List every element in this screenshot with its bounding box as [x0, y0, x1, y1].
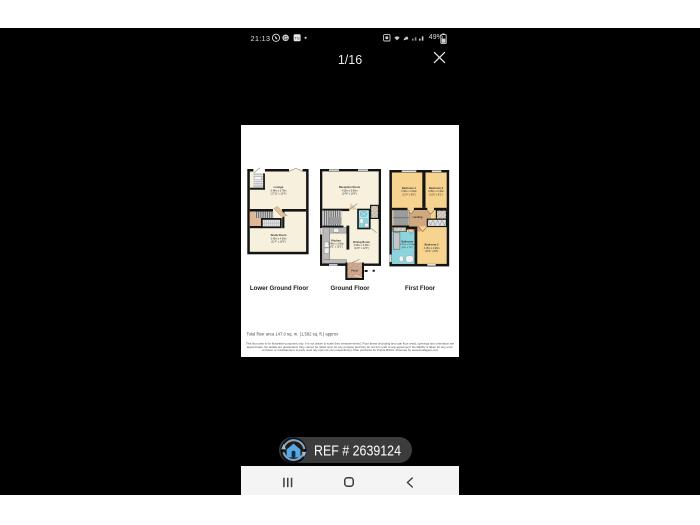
svg-text:(12'0" x 12'0"): (12'0" x 12'0") — [354, 247, 369, 250]
svg-text:(8'2" x 12'0"): (8'2" x 12'0") — [329, 246, 343, 249]
svg-text:Bathroom: Bathroom — [401, 240, 414, 243]
svg-text:Total floor area 147.0 sq. m.: Total floor area 147.0 sq. m. (1,582 sq.… — [247, 332, 340, 337]
svg-text:(10'0" x 8'1"): (10'0" x 8'1") — [429, 193, 443, 196]
svg-text:First Floor: First Floor — [405, 285, 436, 292]
svg-text:G: G — [283, 36, 287, 42]
svg-text:(17'11" x 12'4"): (17'11" x 12'4") — [271, 193, 287, 196]
svg-text:1.97m x 2.28m: 1.97m x 2.28m — [400, 244, 415, 246]
svg-text:(6'6" x 7'6"): (6'6" x 7'6") — [402, 247, 413, 249]
svg-text:TG: TG — [294, 36, 300, 41]
svg-text:(14'9" x 19'4"): (14'9" x 19'4") — [342, 193, 357, 196]
svg-text:Lower Ground Floor: Lower Ground Floor — [250, 285, 309, 292]
svg-text:(11'4" x 9'6"): (11'4" x 9'6") — [402, 193, 415, 196]
svg-text:Ground Floor: Ground Floor — [331, 285, 371, 292]
svg-text:Landing: Landing — [413, 216, 423, 219]
svg-text:(10'4" x 9'8"): (10'4" x 9'8") — [425, 250, 439, 253]
svg-text:omission or misstatement. A pa: omission or misstatement. A party must r… — [262, 348, 439, 352]
svg-text:Porch: Porch — [351, 269, 358, 272]
svg-text:REF # 2639124: REF # 2639124 — [314, 444, 401, 460]
svg-text:(11'4" x 14'5"): (11'4" x 14'5") — [271, 241, 286, 244]
